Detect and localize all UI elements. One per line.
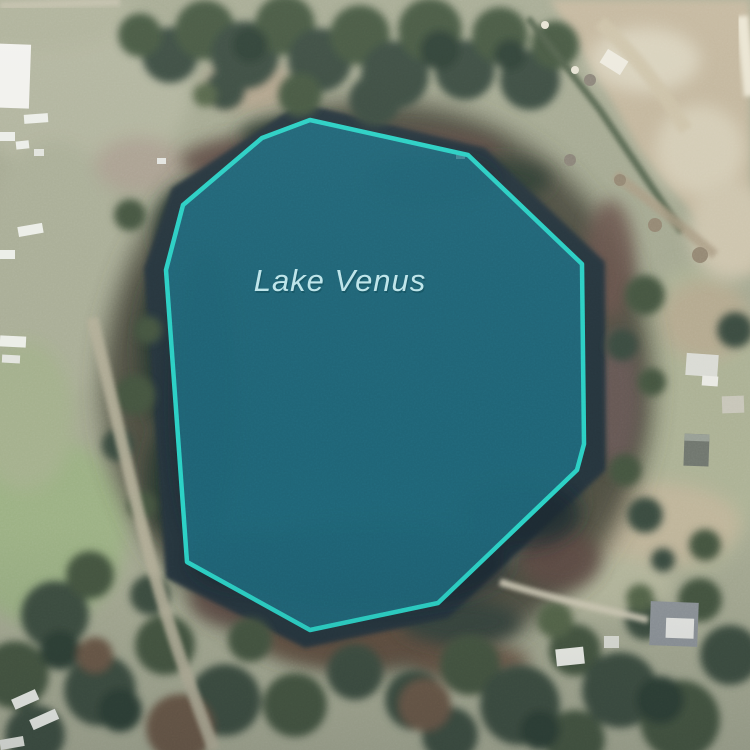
map-canvas[interactable]: Lake Venus Lake Venus <box>0 0 750 750</box>
aerial-map[interactable]: Lake Venus Lake Venus <box>0 0 750 750</box>
tone-vignette <box>0 0 750 750</box>
